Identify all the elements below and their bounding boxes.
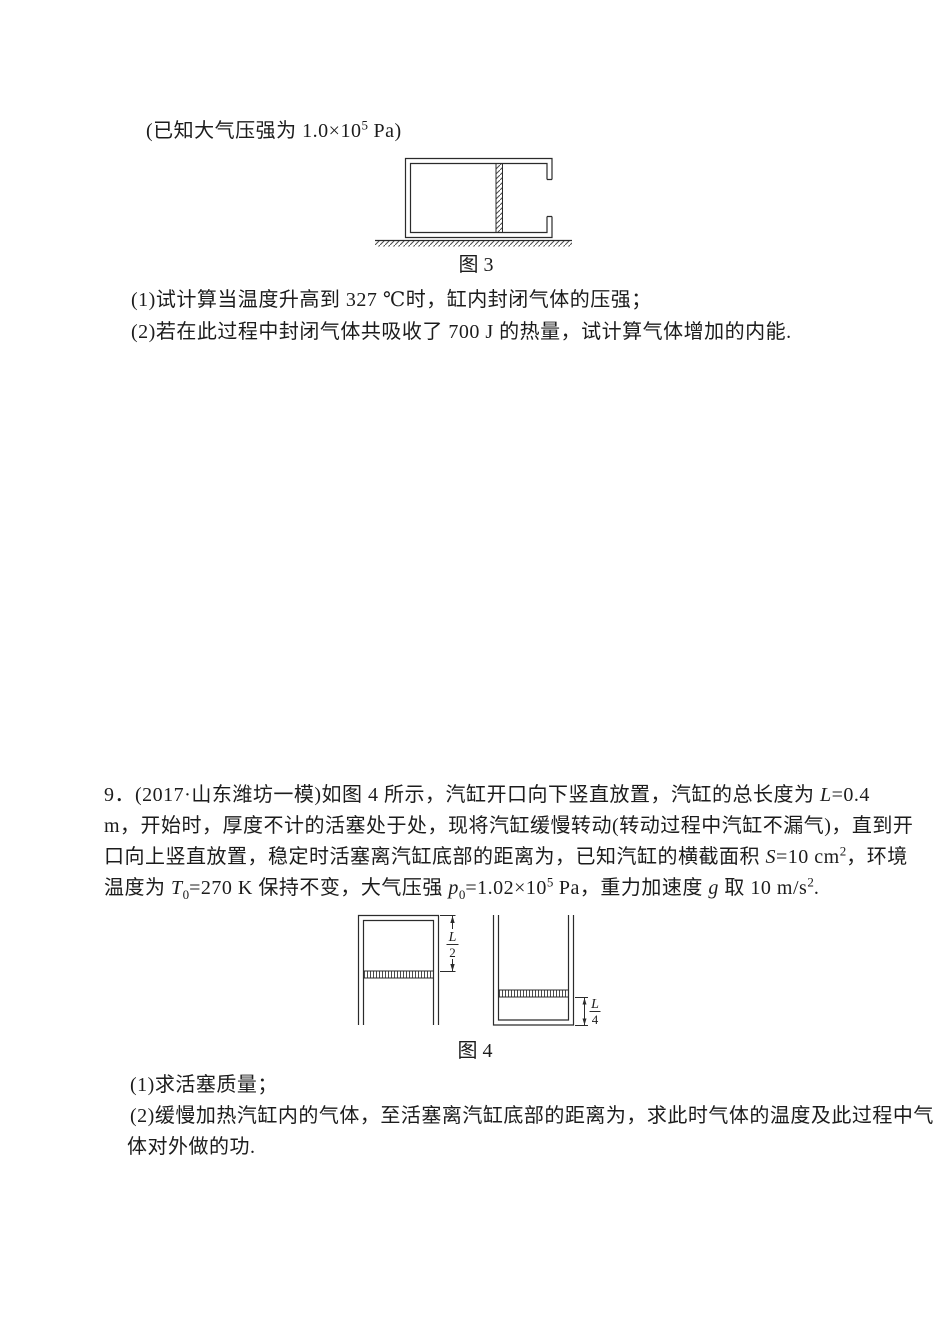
problem9-line-4: 温度为 T0=270 K 保持不变，大气压强 p0=1.02×105 Pa，重力… xyxy=(104,876,819,900)
problem9-line-1: 9．(2017·山东潍坊一模)如图 4 所示，汽缸开口向下竖直放置，汽缸的总长度… xyxy=(104,783,870,807)
fig4-left-arrow-down-icon xyxy=(450,964,454,971)
problem9-question-2-line2: 体对外做的功. xyxy=(127,1135,256,1159)
fig4-left-piston xyxy=(364,971,434,978)
problem9-line-3: 口向上竖直放置，稳定时活塞离汽缸底部的距离为，已知汽缸的横截面积 S=10 cm… xyxy=(104,845,908,869)
fig4-right-cylinder-walls xyxy=(494,915,574,1025)
fig4-right-dim-numerator: L xyxy=(590,997,599,1012)
fig4-right-arrow-down-icon xyxy=(583,1019,587,1026)
figure4-caption: 图 4 xyxy=(435,1039,515,1063)
fig4-right-arrow-up-icon xyxy=(583,998,587,1005)
problem9-line-2: m，开始时，厚度不计的活塞处于处，现将汽缸缓慢转动(转动过程中汽缸不漏气)，直到… xyxy=(104,814,913,838)
fig4-left-dim-denominator: 2 xyxy=(449,945,456,960)
figure3-drawing xyxy=(370,150,580,250)
problem8-question-2: (2)若在此过程中封闭气体共吸收了 700 J 的热量，试计算气体增加的内能. xyxy=(131,320,792,344)
problem8-given-line: (已知大气压强为 1.0×105 Pa) xyxy=(146,119,402,143)
fig4-right-dim-denominator: 4 xyxy=(592,1012,599,1027)
fig3-piston xyxy=(496,164,503,233)
fig4-right-piston xyxy=(499,990,569,997)
problem9-question-1: (1)求活塞质量； xyxy=(130,1073,278,1097)
problem9-question-2-line1: (2)缓慢加热汽缸内的气体，至活塞离汽缸底部的距离为，求此时气体的温度及此过程中… xyxy=(130,1104,934,1128)
fig3-ground xyxy=(375,241,572,247)
problem8-question-1: (1)试计算当温度升高到 327 ℃时，缸内封闭气体的压强； xyxy=(131,288,652,312)
fig4-left-dim-numerator: L xyxy=(448,930,457,945)
fig4-right-dimension xyxy=(575,998,588,1026)
fig4-left-cylinder-walls xyxy=(359,916,439,1026)
figure3-caption: 图 3 xyxy=(436,253,516,277)
figure4-drawing: L 2 L 4 xyxy=(345,905,605,1030)
fig3-cylinder-walls xyxy=(406,159,553,238)
fig4-left-arrow-up-icon xyxy=(450,916,454,923)
document-page: (已知大气压强为 1.0×105 Pa) 图 3 (1)试计算当温度升高到 32… xyxy=(0,0,950,1344)
